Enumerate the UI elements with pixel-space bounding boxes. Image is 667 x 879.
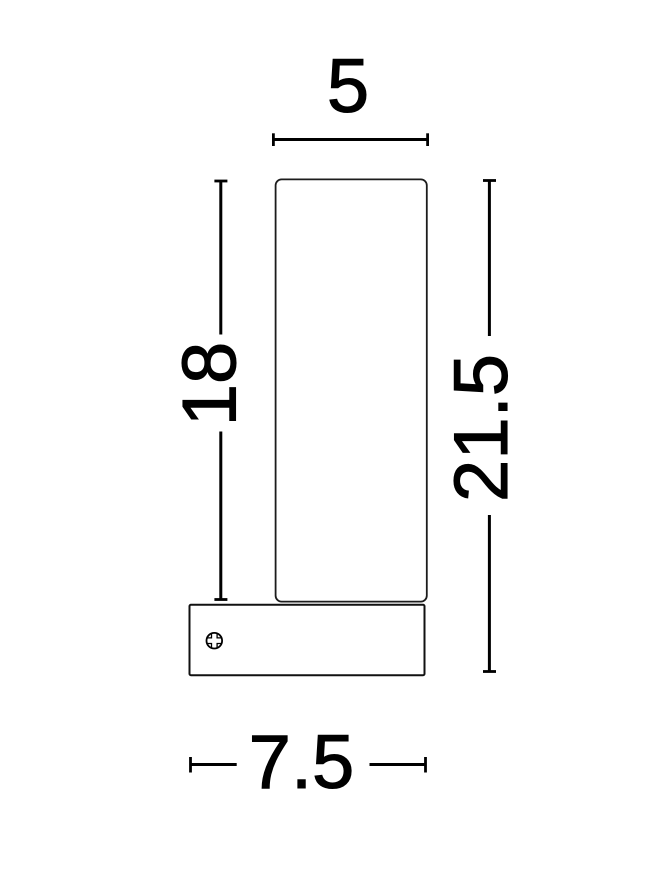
svg-text:7.5: 7.5 [249,720,355,805]
svg-text:21.5: 21.5 [439,354,524,502]
svg-text:5: 5 [327,44,369,129]
svg-text:18: 18 [168,342,253,427]
